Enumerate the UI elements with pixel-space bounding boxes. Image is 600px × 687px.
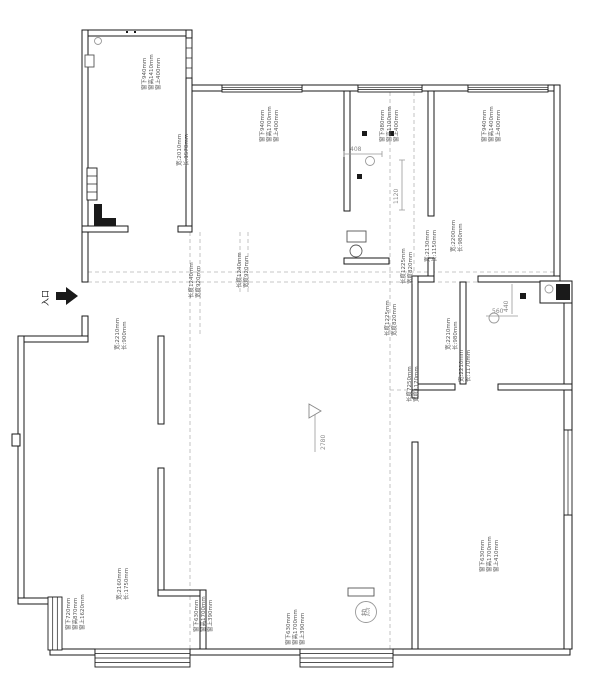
svg-text:宽度920mm: 宽度920mm bbox=[194, 266, 202, 298]
window-top-1 bbox=[222, 85, 302, 92]
svg-text:长度1240mm: 长度1240mm bbox=[187, 262, 195, 298]
svg-text:长:980mm: 长:980mm bbox=[456, 223, 464, 252]
window-right bbox=[564, 430, 572, 515]
window-spec-bottom-mid-1: 窗上390mm 窗高1700mm 窗下630mm bbox=[192, 596, 214, 632]
svg-text:窗高1700mm: 窗高1700mm bbox=[199, 596, 207, 632]
svg-text:长:900mm: 长:900mm bbox=[120, 321, 128, 350]
dim-408: 408 bbox=[350, 146, 362, 153]
svg-text:窗高1410mm: 窗高1410mm bbox=[147, 54, 155, 90]
window-spec-top-left: 窗上400mm 窗高1410mm 窗下940mm bbox=[140, 54, 162, 90]
passage-dim-2: 宽度920mm 长度1240mm bbox=[235, 252, 250, 288]
svg-text:窗上1620mm: 窗上1620mm bbox=[78, 594, 86, 630]
svg-text:长度1225mm: 长度1225mm bbox=[383, 300, 391, 336]
room-dim-hall-upper: 长:1150mm 宽:2130mm bbox=[423, 230, 438, 262]
entrance-arrow-icon bbox=[56, 287, 78, 305]
svg-text:宽:2200mm: 宽:2200mm bbox=[449, 220, 457, 252]
dim-1120: 1120 bbox=[393, 189, 400, 204]
room-dim-left-mid: 长:900mm 宽:2210mm bbox=[113, 318, 128, 350]
ceiling-lamp-icon bbox=[95, 38, 102, 45]
window-spec-bottom-right: 窗上410mm 窗高1700mm 窗下630mm bbox=[478, 536, 500, 572]
passage-dim-4: 宽度820mm 长度1225mm bbox=[383, 300, 398, 336]
svg-text:长:1170mm: 长:1170mm bbox=[464, 350, 472, 382]
svg-text:窗下940mm: 窗下940mm bbox=[258, 110, 266, 142]
floorplan-page: 入口 热 408 1120 440 560 2780 窗上400mm 窗高141… bbox=[0, 0, 600, 687]
window-spec-bottom-left: 窗上1620mm 窗高870mm 窗下720mm bbox=[64, 594, 86, 630]
svg-text:宽:2210mm: 宽:2210mm bbox=[444, 318, 452, 350]
passage-dim-1: 宽度920mm 长度1240mm bbox=[187, 262, 202, 298]
level-mark-value: 2780 bbox=[320, 435, 327, 450]
room-dim-right-mid-2: 长:1170mm 宽:2210mm bbox=[457, 350, 472, 382]
window-top-2 bbox=[358, 85, 422, 92]
window-spec-bottom-mid-2: 窗上390mm 窗高1700mm 窗下630mm bbox=[284, 609, 306, 645]
water-heater: 热 bbox=[356, 602, 377, 623]
svg-text:窗下630mm: 窗下630mm bbox=[192, 600, 200, 632]
svg-text:窗高1400mm: 窗高1400mm bbox=[487, 106, 495, 142]
window-spec-top-mid: 窗上400mm 窗高1700mm 窗下940mm bbox=[258, 106, 280, 142]
passage-dim-corridor: 宽度1170mm 长度7250mm bbox=[405, 366, 420, 402]
svg-text:窗上390mm: 窗上390mm bbox=[298, 613, 306, 645]
electric-panel-icon bbox=[85, 55, 94, 67]
floorplan-drawing: 入口 热 408 1120 440 560 2780 窗上400mm 窗高141… bbox=[0, 0, 600, 687]
svg-text:宽:2210mm: 宽:2210mm bbox=[457, 350, 465, 382]
room-dim-bath-right: 长:980mm 宽:2200mm bbox=[449, 220, 464, 252]
svg-text:长:1150mm: 长:1150mm bbox=[430, 230, 438, 262]
svg-text:窗上400mm: 窗上400mm bbox=[494, 110, 502, 142]
svg-text:长度1225mm: 长度1225mm bbox=[399, 248, 407, 284]
svg-text:窗上400mm: 窗上400mm bbox=[272, 110, 280, 142]
entrance: 入口 bbox=[41, 287, 78, 306]
floor-drain-icon bbox=[366, 157, 375, 166]
room-dim-top-left-inner: 长:1570mm 宽:2010mm bbox=[175, 134, 190, 166]
sink-icon bbox=[347, 231, 366, 242]
window-top-3 bbox=[468, 85, 548, 92]
utility-platform bbox=[540, 281, 572, 303]
bay-window-bottom-left bbox=[95, 649, 190, 667]
svg-text:窗上400mm: 窗上400mm bbox=[392, 110, 400, 142]
svg-text:宽度820mm: 宽度820mm bbox=[406, 252, 414, 284]
svg-text:窗上400mm: 窗上400mm bbox=[154, 58, 162, 90]
svg-text:长:980mm: 长:980mm bbox=[451, 321, 459, 350]
svg-text:宽度920mm: 宽度920mm bbox=[242, 256, 250, 288]
passage-dim-3: 宽度820mm 长度1225mm bbox=[399, 248, 414, 284]
dim-560: 560 bbox=[492, 308, 504, 315]
svg-text:窗高1700mm: 窗高1700mm bbox=[265, 106, 273, 142]
corner-cabinet-icon bbox=[94, 204, 116, 226]
marker-dot-icon bbox=[126, 31, 128, 33]
svg-text:窗下630mm: 窗下630mm bbox=[284, 613, 292, 645]
toilet-icon bbox=[350, 245, 362, 257]
svg-text:窗高1100mm: 窗高1100mm bbox=[385, 106, 393, 142]
svg-text:窗下630mm: 窗下630mm bbox=[478, 540, 486, 572]
svg-text:宽:2130mm: 宽:2130mm bbox=[423, 230, 431, 262]
svg-text:宽度1170mm: 宽度1170mm bbox=[412, 366, 420, 402]
door-band-top-left-room bbox=[186, 38, 192, 78]
dim-440: 440 bbox=[503, 300, 510, 312]
svg-text:宽度820mm: 宽度820mm bbox=[390, 304, 398, 336]
svg-text:长:1570mm: 长:1570mm bbox=[182, 134, 190, 166]
svg-text:窗上410mm: 窗上410mm bbox=[492, 540, 500, 572]
svg-text:长度7250mm: 长度7250mm bbox=[405, 366, 413, 402]
svg-text:窗高1700mm: 窗高1700mm bbox=[291, 609, 299, 645]
svg-text:宽:2210mm: 宽:2210mm bbox=[113, 318, 121, 350]
svg-text:窗下940mm: 窗下940mm bbox=[140, 58, 148, 90]
room-dim-right-mid: 长:980mm 宽:2210mm bbox=[444, 318, 459, 350]
svg-text:窗下980mm: 窗下980mm bbox=[378, 110, 386, 142]
radiator-icon bbox=[87, 168, 97, 200]
window-spec-bathroom: 窗上400mm 窗高1100mm 窗下980mm bbox=[378, 106, 400, 142]
window-spec-top-right: 窗上400mm 窗高1400mm 窗下940mm bbox=[480, 106, 502, 142]
entrance-label: 入口 bbox=[41, 290, 50, 306]
svg-text:窗高870mm: 窗高870mm bbox=[71, 598, 79, 630]
marker-dot-icon bbox=[134, 31, 136, 33]
svg-text:宽:2160mm: 宽:2160mm bbox=[115, 568, 123, 600]
socket-icon bbox=[520, 293, 526, 299]
water-heater-label: 热 bbox=[360, 607, 372, 616]
heater-unit-icon bbox=[348, 588, 374, 596]
svg-text:窗上390mm: 窗上390mm bbox=[206, 600, 214, 632]
window-spec-labels: 窗上400mm 窗高1410mm 窗下940mm 窗上400mm 窗高1700m… bbox=[64, 54, 502, 645]
svg-text:长:1750mm: 长:1750mm bbox=[122, 568, 130, 600]
bay-window-bottom-right bbox=[300, 649, 393, 667]
socket-icon bbox=[357, 174, 362, 179]
svg-text:窗下720mm: 窗下720mm bbox=[64, 598, 72, 630]
svg-text:宽:2010mm: 宽:2010mm bbox=[175, 134, 183, 166]
svg-text:窗高1700mm: 窗高1700mm bbox=[485, 536, 493, 572]
room-dim-bottom-left: 长:1750mm 宽:2160mm bbox=[115, 568, 130, 600]
socket-icon bbox=[362, 131, 367, 136]
window-left-lower bbox=[48, 597, 62, 650]
svg-text:窗下940mm: 窗下940mm bbox=[480, 110, 488, 142]
svg-text:长度1240mm: 长度1240mm bbox=[235, 252, 243, 288]
